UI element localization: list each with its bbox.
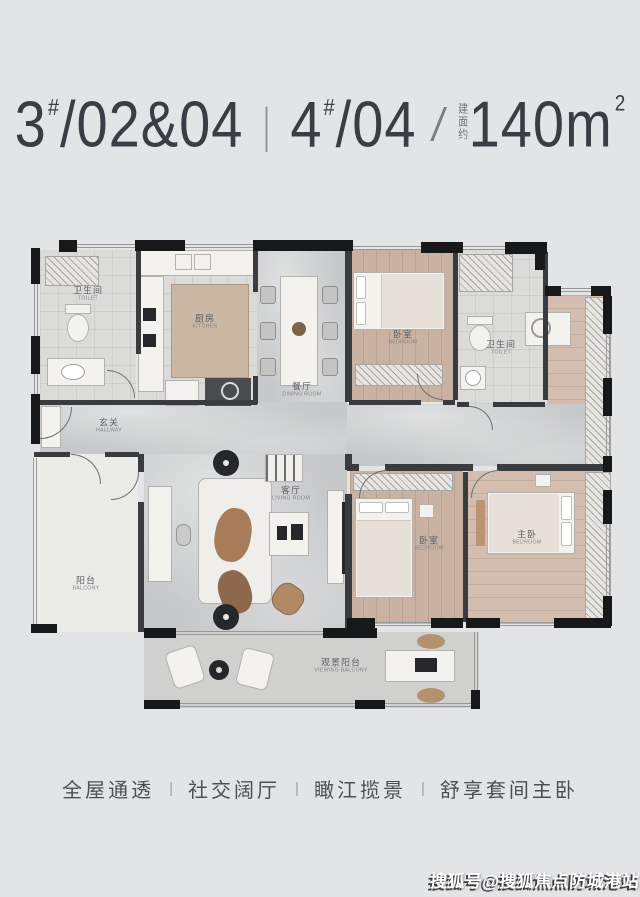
window bbox=[176, 631, 323, 635]
wall-segment bbox=[144, 700, 180, 709]
feature-item: 社交阔厅 bbox=[188, 774, 280, 803]
desk-chair bbox=[176, 524, 191, 546]
pillow-icon bbox=[561, 522, 572, 546]
wall-segment bbox=[31, 624, 57, 633]
interior-wall bbox=[543, 252, 548, 400]
window bbox=[180, 703, 355, 707]
wall-segment bbox=[59, 240, 77, 252]
wall-segment bbox=[144, 628, 176, 638]
title-slash: / bbox=[433, 100, 444, 152]
window bbox=[606, 524, 610, 596]
room-label-viewing-balcony: 观景阳台VIEWING BALCONY bbox=[295, 659, 387, 678]
wall-segment bbox=[355, 700, 385, 709]
room-label-bedroom-top: 卧室BEDROOM bbox=[378, 331, 428, 350]
window bbox=[500, 622, 554, 626]
window bbox=[77, 244, 135, 248]
area-label: 建面约 bbox=[456, 102, 466, 140]
window bbox=[353, 246, 421, 250]
ac-fan-icon bbox=[531, 318, 551, 338]
pillow-icon bbox=[356, 302, 366, 325]
window bbox=[375, 622, 431, 626]
interior-wall bbox=[345, 494, 352, 632]
dining-chair bbox=[260, 358, 276, 376]
wall-segment bbox=[253, 240, 353, 251]
coffee-table-item bbox=[291, 524, 303, 540]
unit1-rooms: /02&04 bbox=[60, 92, 244, 157]
wall-segment bbox=[347, 618, 375, 628]
interior-wall bbox=[34, 452, 70, 457]
room-label-master: 主卧BEDROOM bbox=[502, 531, 552, 550]
sink-basin-icon bbox=[61, 364, 85, 380]
wall-segment bbox=[421, 242, 463, 253]
side-table-dot bbox=[223, 614, 229, 620]
shower-icon bbox=[45, 256, 99, 286]
window bbox=[561, 288, 591, 292]
dining-chair bbox=[260, 286, 276, 304]
window bbox=[33, 458, 37, 624]
wall-segment bbox=[323, 628, 377, 638]
wall-segment bbox=[135, 240, 185, 251]
window bbox=[463, 246, 505, 250]
interior-wall bbox=[349, 400, 421, 405]
area-value: 140m bbox=[469, 92, 613, 157]
stove-burner-icon bbox=[143, 308, 156, 321]
wall-segment bbox=[554, 618, 611, 628]
room-label-dining: 餐厅DINING ROOM bbox=[268, 383, 336, 402]
bed-bench bbox=[476, 500, 485, 546]
table-plant-icon bbox=[292, 322, 306, 336]
interior-wall bbox=[463, 472, 468, 622]
wall-segment bbox=[31, 248, 40, 284]
feature-strip: 全屋通透 | 社交阔厅 | 瞰江揽景 | 舒享套间主卧 bbox=[0, 774, 640, 803]
dining-chair bbox=[322, 286, 338, 304]
coffee-table bbox=[269, 512, 309, 556]
wall-segment bbox=[431, 618, 463, 628]
room-label-bath-right: 卫生间TOILET bbox=[484, 341, 518, 360]
interior-wall bbox=[40, 400, 257, 405]
room-label-kitchen: 厨房KITCHEN bbox=[183, 315, 226, 334]
interior-wall bbox=[345, 250, 352, 402]
interior-wall bbox=[253, 376, 258, 404]
wall-segment bbox=[471, 690, 480, 709]
feature-item: 舒享套间主卧 bbox=[440, 774, 578, 803]
interior-wall bbox=[385, 464, 473, 471]
balcony-table-dot bbox=[216, 667, 222, 673]
feature-item: 全屋通透 bbox=[62, 774, 154, 803]
nightstand bbox=[419, 504, 434, 518]
pillow-icon bbox=[561, 496, 572, 520]
interior-wall bbox=[136, 250, 141, 354]
interior-wall bbox=[105, 452, 139, 457]
pillow-icon bbox=[359, 502, 383, 513]
room-label-bedroom-mid: 卧室BEDROOM bbox=[404, 537, 454, 556]
feature-divider: | bbox=[169, 780, 173, 797]
unit2-rooms: /04 bbox=[336, 92, 417, 157]
watermark: 搜狐号@搜狐焦点防城港站 bbox=[430, 867, 640, 892]
feature-divider: | bbox=[421, 780, 425, 797]
feature-item: 瞰江揽景 bbox=[314, 774, 406, 803]
page-title: 3#/02&04 | 4#/04 / 建面约 140m2 bbox=[0, 92, 640, 157]
wall-segment bbox=[603, 378, 612, 416]
tv-desk bbox=[148, 486, 172, 582]
window bbox=[606, 416, 610, 456]
interior-wall bbox=[453, 252, 458, 400]
dining-chair bbox=[322, 358, 338, 376]
stool bbox=[417, 634, 445, 649]
window bbox=[474, 632, 478, 690]
interior-wall bbox=[138, 502, 144, 632]
interior-wall bbox=[345, 454, 352, 470]
interior-wall bbox=[493, 402, 545, 407]
coffee-table-item bbox=[277, 526, 287, 540]
cabinet bbox=[265, 454, 303, 482]
window bbox=[606, 334, 610, 378]
wall-segment bbox=[535, 242, 545, 270]
window bbox=[34, 374, 38, 394]
room-label-bath-main: 卫生间TOILET bbox=[71, 287, 105, 306]
dining-chair bbox=[260, 322, 276, 340]
pillow-icon bbox=[356, 276, 366, 299]
sink-basin-icon bbox=[465, 370, 481, 386]
room-label-hallway: 玄关HALLWAY bbox=[87, 419, 132, 438]
room-label-living: 客厅LIVING ROOM bbox=[258, 487, 324, 506]
window bbox=[185, 244, 253, 248]
pillow-icon bbox=[385, 502, 409, 513]
wall-segment bbox=[603, 456, 612, 472]
kitchen-sink-icon bbox=[194, 254, 211, 270]
toilet-tank-icon bbox=[65, 304, 91, 314]
oven-dial-icon bbox=[221, 382, 239, 400]
bed-duvet bbox=[357, 520, 411, 596]
wall-segment bbox=[545, 286, 561, 296]
interior-wall bbox=[443, 400, 455, 405]
unit1-number: 3 bbox=[15, 92, 47, 157]
kitchen-sink-icon bbox=[175, 254, 192, 270]
stool bbox=[417, 688, 445, 703]
side-table-dot bbox=[223, 460, 229, 466]
interior-wall bbox=[497, 464, 611, 471]
shower-icon bbox=[459, 254, 513, 292]
window bbox=[385, 703, 471, 707]
floor-plan: 卫生间TOILET 厨房KITCHEN 餐厅DINING ROOM 卧室BEDR… bbox=[29, 240, 612, 712]
title-divider: | bbox=[264, 98, 270, 154]
screenshot-root: { "title": { "unit1": "3", "unit1_sup": … bbox=[0, 0, 640, 897]
room-label-balcony-left: 阳台BALCONY bbox=[63, 577, 110, 596]
wall-segment bbox=[591, 286, 611, 296]
wall-segment bbox=[31, 336, 40, 374]
interior-wall bbox=[253, 250, 258, 292]
stove-burner-icon bbox=[143, 334, 156, 347]
toilet-tank-icon bbox=[467, 316, 493, 325]
toilet-icon bbox=[67, 314, 89, 342]
unit2-number: 4 bbox=[290, 92, 322, 157]
unit1-hash: # bbox=[48, 95, 59, 122]
interior-wall bbox=[457, 402, 469, 407]
feature-divider: | bbox=[295, 780, 299, 797]
unit2-hash: # bbox=[324, 95, 335, 122]
wall-segment bbox=[603, 490, 612, 524]
wall-segment bbox=[31, 394, 40, 444]
laptop-icon bbox=[415, 658, 437, 672]
wall-segment bbox=[466, 618, 500, 628]
nightstand bbox=[535, 474, 551, 487]
bed-duvet bbox=[381, 274, 443, 328]
area-superscript: 2 bbox=[615, 92, 626, 118]
dining-chair bbox=[322, 322, 338, 340]
wall-segment bbox=[603, 296, 612, 334]
window bbox=[34, 284, 38, 336]
